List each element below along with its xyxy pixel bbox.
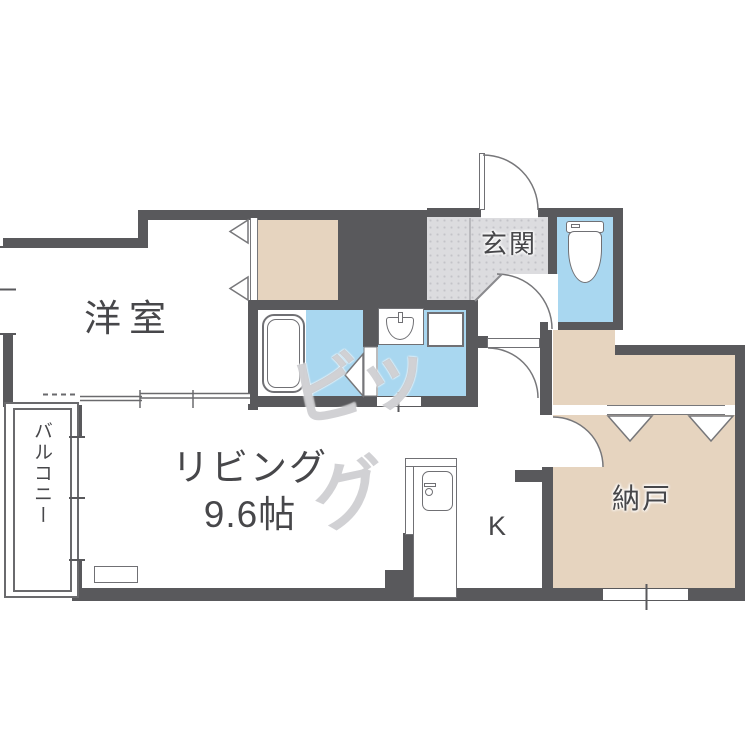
closet-west-fold-marker — [230, 220, 248, 243]
front-door-arc — [483, 155, 538, 210]
storage-door-swing — [553, 417, 603, 467]
toilet-door-swing — [497, 274, 552, 329]
room-label-entrance: 玄関 — [481, 231, 537, 258]
sliding-door-lines — [80, 390, 250, 408]
room-label-kitchen: K — [488, 512, 506, 540]
room-label-western: 洋室 — [84, 300, 174, 339]
room-label-living: リビング — [130, 449, 370, 488]
closet-west-fold-marker — [230, 277, 248, 300]
hall-door-arc — [488, 348, 538, 398]
entrance-step-line — [475, 274, 502, 301]
room-label-storage: 納戸 — [612, 484, 672, 513]
closet-storage-fold-marker — [689, 416, 733, 441]
room-label-living-size: 9.6帖 — [130, 496, 370, 535]
closet-storage-fold-marker — [608, 416, 652, 441]
floorplan-canvas: ビッグ 洋室 リビング 9.6帖 K 玄関 納戸 バルコニー — [0, 0, 750, 750]
room-label-balcony: バルコニー — [31, 421, 51, 526]
